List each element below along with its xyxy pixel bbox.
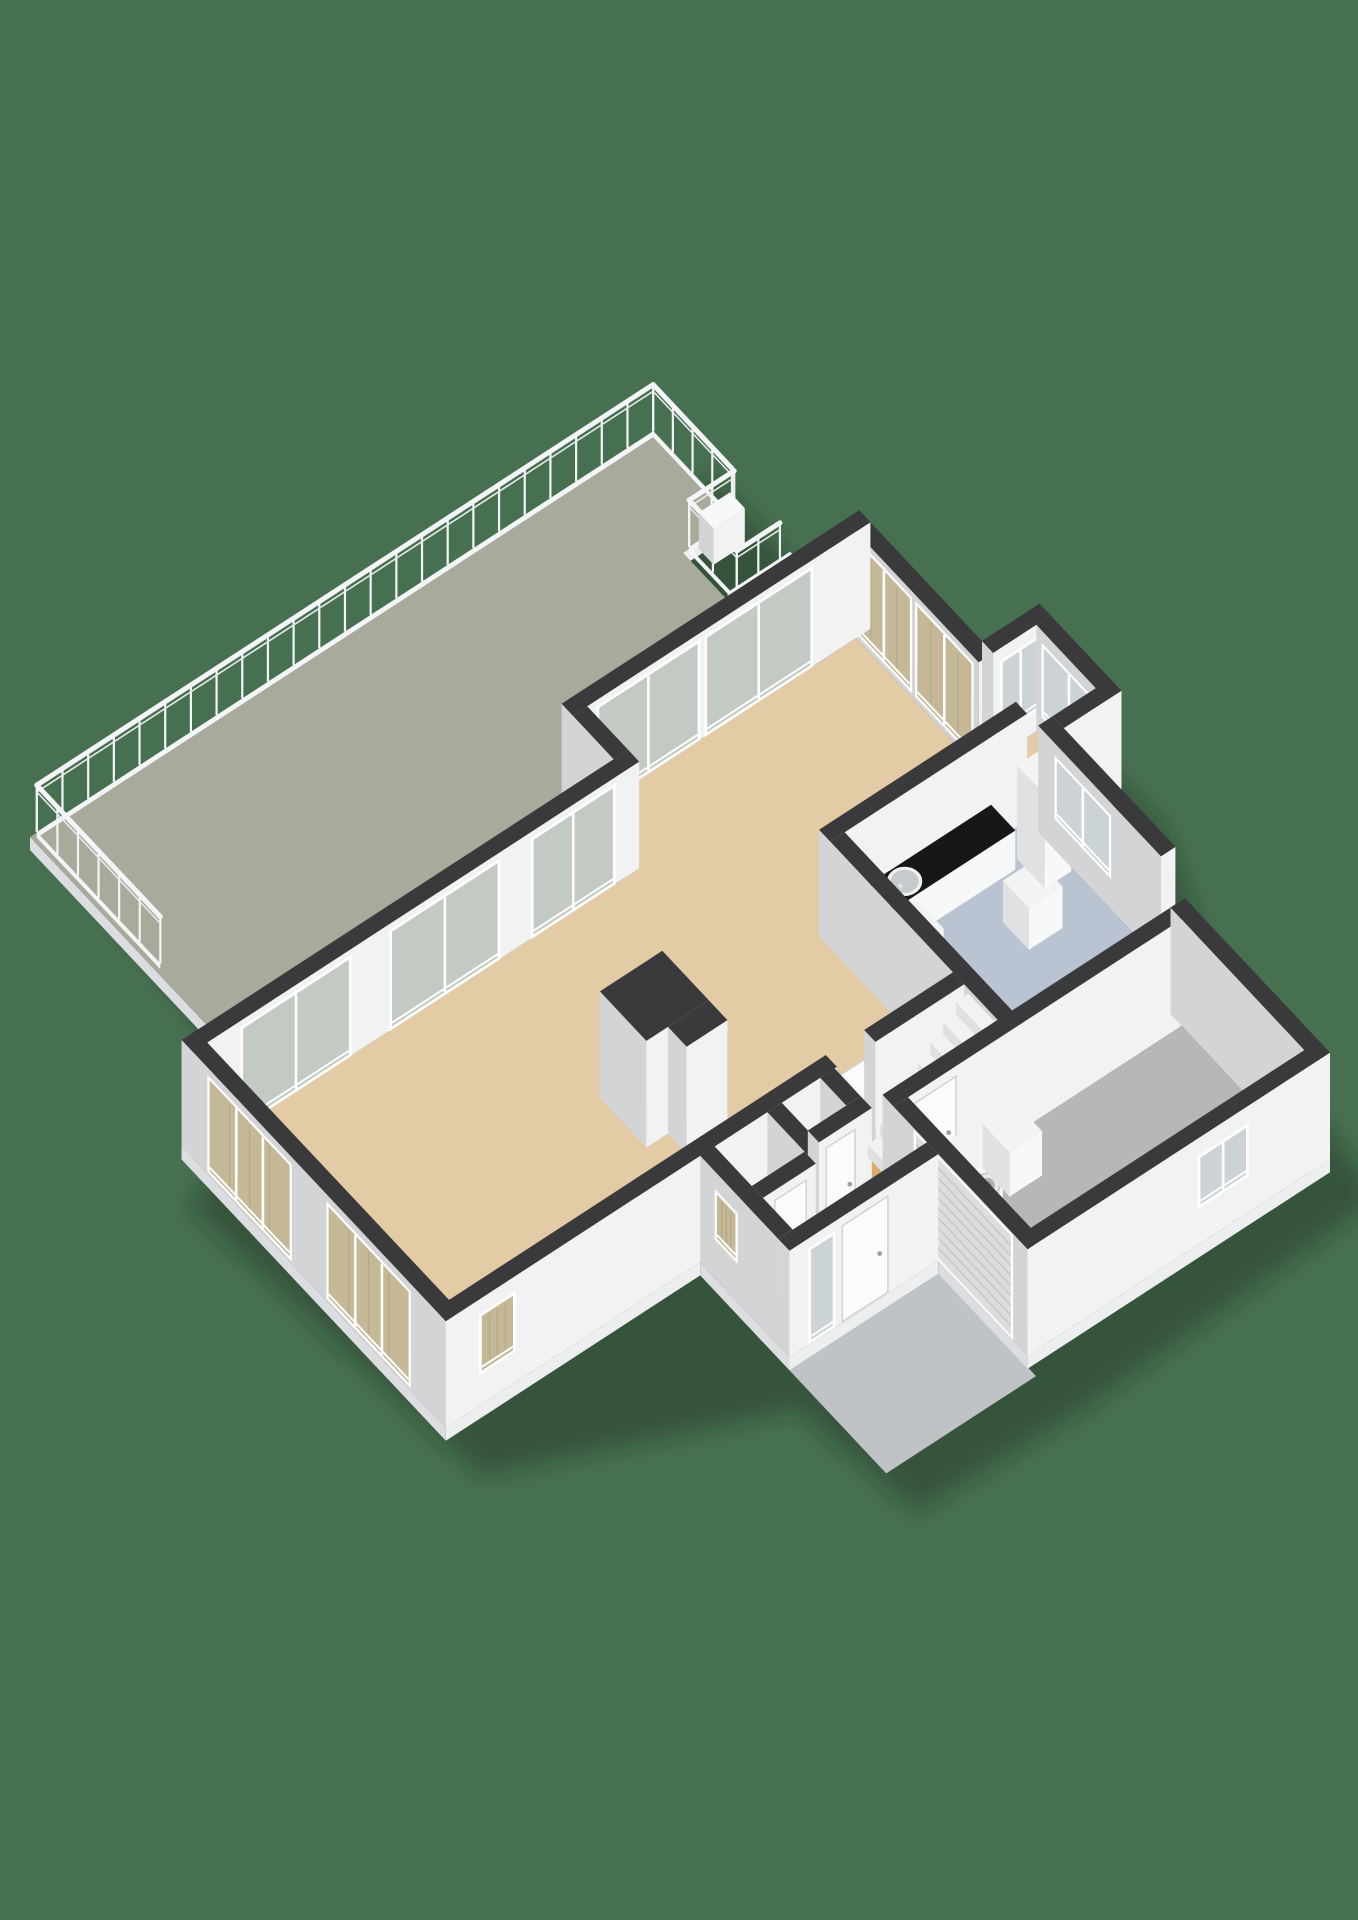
garage-inner-door-handle [946, 1130, 951, 1135]
kitchen-divider-wall-sw-face [819, 830, 830, 948]
front-door-handle [877, 1251, 882, 1256]
entry-se-wall-sw-face [778, 1239, 789, 1357]
chimney-box-ext-sw-face [668, 1027, 687, 1153]
floor-plan-viewport [0, 0, 1358, 1920]
sink-faucet [898, 883, 902, 887]
floor-plan-render [0, 0, 1358, 1920]
garage-sw-wall-se-face [1028, 1240, 1042, 1356]
living-se-wall-sw-face [435, 1309, 446, 1428]
closet-door-handle [847, 1182, 852, 1187]
